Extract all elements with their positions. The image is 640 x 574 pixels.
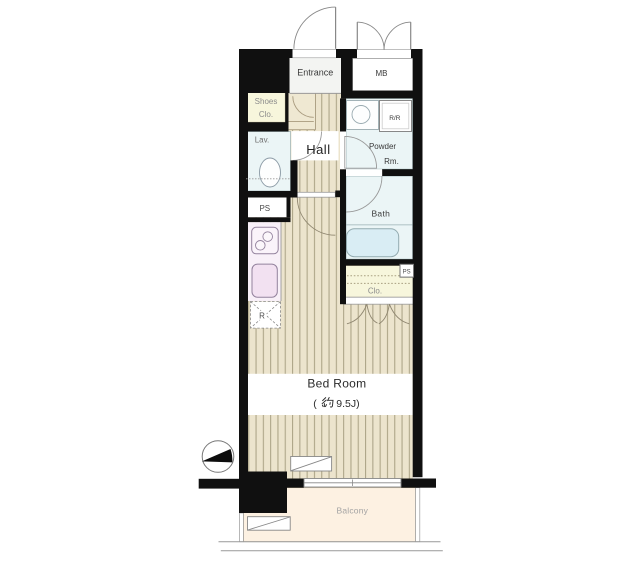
svg-text:PS: PS	[259, 204, 270, 213]
svg-text:Bed Room: Bed Room	[307, 377, 366, 391]
svg-text:Clo.: Clo.	[259, 110, 273, 119]
svg-text:Shoes: Shoes	[255, 97, 278, 106]
svg-text:Powder: Powder	[369, 142, 396, 151]
svg-text:Balcony: Balcony	[336, 505, 368, 515]
svg-text:Bath: Bath	[371, 208, 390, 218]
svg-text:MB: MB	[376, 69, 388, 78]
svg-text:9.5J): 9.5J)	[336, 398, 359, 410]
svg-text:R: R	[259, 312, 265, 321]
svg-text:Rm.: Rm.	[384, 157, 399, 166]
svg-text:(: (	[313, 398, 317, 410]
svg-text:PS: PS	[403, 270, 411, 276]
svg-text:Clo.: Clo.	[368, 286, 382, 295]
svg-text:Lav.: Lav.	[255, 136, 270, 145]
svg-text:R/R: R/R	[389, 115, 401, 122]
svg-text:Hall: Hall	[306, 142, 330, 157]
svg-text:Entrance: Entrance	[297, 68, 333, 78]
